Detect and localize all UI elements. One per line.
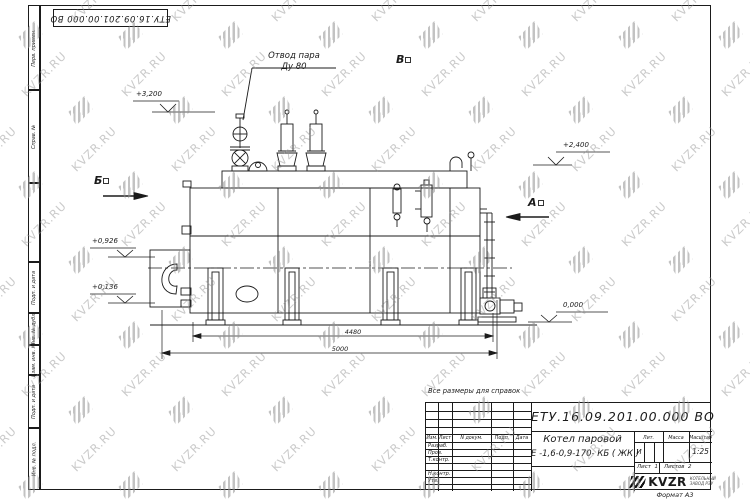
tb-massa-label: Масса xyxy=(663,436,689,441)
elevation-marks xyxy=(90,101,610,322)
view-label-b: Б xyxy=(94,174,109,187)
tb-line xyxy=(659,462,660,473)
view-ref-box xyxy=(538,200,544,206)
title-block: ЕТУ.16.09.201.00.000 ВО Котел паровой Е … xyxy=(425,402,711,490)
elevation-2400: +2,400 xyxy=(563,141,589,149)
tb-logo-cell: KVZR КОТЕЛЬНЫЙ ЗАВОД РЭУ xyxy=(634,473,712,491)
elevation-0136: +0,136 xyxy=(92,283,118,291)
tb-line xyxy=(634,442,712,443)
tb-col-ndokum: N докум. xyxy=(452,436,491,441)
kvzr-logo-text: KVZR xyxy=(648,476,687,488)
tb-line xyxy=(426,427,531,428)
kvzr-logo-icon xyxy=(629,476,647,488)
callout-leader-line xyxy=(243,68,336,120)
kvzr-logo-subtext: КОТЕЛЬНЫЙ ЗАВОД РЭУ xyxy=(690,477,716,486)
tb-list-value: 1 xyxy=(654,464,658,470)
support-legs xyxy=(206,268,478,325)
tb-line xyxy=(426,419,531,420)
tb-col-list: Лист xyxy=(438,436,452,441)
dimension-4480: 4480 xyxy=(333,328,373,336)
tb-masshtab-label: Масштаб xyxy=(689,436,712,441)
format-label: Формат А3 xyxy=(640,491,710,499)
view-letter: А xyxy=(528,196,537,209)
tb-list-label: Лист xyxy=(637,464,651,470)
tb-name-line2: Е -1,6-0,9-170- КБ ( ЖК ) xyxy=(531,449,634,459)
reference-note: Все размеры для справок xyxy=(428,387,520,395)
tb-row-razrab: Разраб. xyxy=(428,443,452,449)
feed-pump xyxy=(478,288,522,322)
tb-doc-number: ЕТУ.16.09.201.00.000 ВО xyxy=(531,403,712,431)
view-ref-box xyxy=(103,178,109,184)
tb-line xyxy=(426,463,531,464)
view-arrows xyxy=(103,193,549,221)
elevation-0000: 0,000 xyxy=(563,301,583,309)
view-letter: Б xyxy=(94,174,102,187)
tb-lit-value: И xyxy=(634,448,644,456)
tb-row-prov: Пров. xyxy=(428,450,452,456)
tb-listov-value: 2 xyxy=(688,464,692,470)
elevation-0926: +0,926 xyxy=(92,237,118,245)
tb-line xyxy=(426,411,531,412)
burner-box xyxy=(150,250,190,307)
tb-listov-label: Листов xyxy=(664,464,685,470)
steam-dome xyxy=(249,162,267,171)
tb-sheet-cell: Лист 1 xyxy=(637,464,658,470)
tb-col-data: Дата xyxy=(513,436,531,441)
steam-valve-assembly xyxy=(230,114,250,171)
tb-lit-label: Лит. xyxy=(634,436,663,441)
downcomer-pipe xyxy=(480,209,495,298)
tb-col-podp: Подп. xyxy=(491,436,513,441)
view-label-a: А xyxy=(528,196,544,209)
tb-row-nkontr: Н.контр. xyxy=(428,471,452,477)
view-label-v: В xyxy=(396,53,411,66)
safety-valves xyxy=(277,110,326,171)
tb-row-utv: Утв. xyxy=(428,478,452,484)
tb-line xyxy=(644,442,645,462)
tb-scale-value: 1:25 xyxy=(689,447,712,456)
kvzr-logo-subline: ЗАВОД РЭУ xyxy=(690,482,716,487)
boiler-body xyxy=(148,171,512,313)
callout-steam-outlet-line2: Ду 80 xyxy=(252,62,336,72)
tb-name-line1: Котел паровой xyxy=(531,434,634,445)
tb-line xyxy=(531,431,712,432)
view-letter: В xyxy=(396,53,404,66)
dimension-5000: 5000 xyxy=(320,345,360,353)
tb-line xyxy=(531,466,634,467)
tb-line xyxy=(654,442,655,462)
drawing-sheet: Перв. примен. Справ. № Подп. и дата Инв.… xyxy=(0,0,750,500)
tb-sheets-cell: Листов 2 xyxy=(664,464,692,470)
elevation-3200: +3,200 xyxy=(136,90,162,98)
tb-col-izm: Изм. xyxy=(426,436,438,441)
tb-line xyxy=(426,484,531,485)
tb-row-tkontr: Т.контр. xyxy=(428,457,452,463)
view-ref-box xyxy=(405,57,411,63)
tb-line xyxy=(634,462,712,463)
platform-fittings xyxy=(450,152,474,171)
callout-steam-outlet-line1: Отвод пара xyxy=(252,51,336,61)
